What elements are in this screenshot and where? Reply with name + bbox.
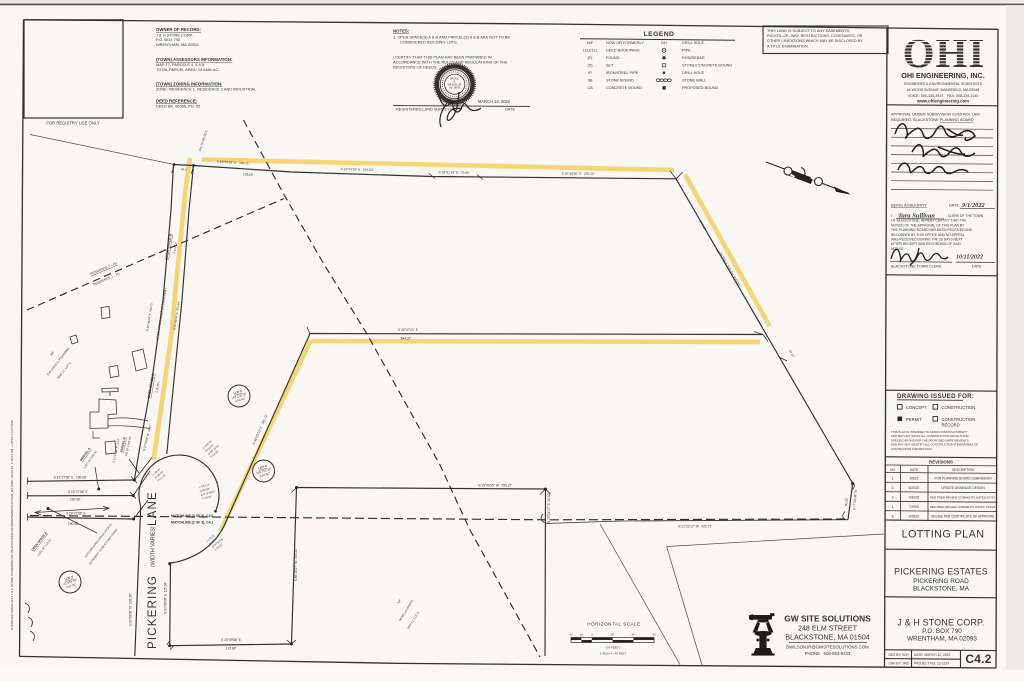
svg-text:THIS LAND IS SUBJECT TO ANY EA: THIS LAND IS SUBJECT TO ANY EASEMENTS, <box>767 29 850 33</box>
svg-text:ROD/REBAR: ROD/REBAR <box>682 56 705 60</box>
svg-text:GW SITE SOLUTIONS: GW SITE SOLUTIONS <box>784 614 871 624</box>
svg-text:S 88°25'27" W 333.10': S 88°25'27" W 333.10' <box>294 548 298 581</box>
svg-text:50.32': 50.32' <box>844 497 849 506</box>
svg-text:644.37': 644.37' <box>401 337 412 341</box>
svg-text:FOR PLANNING BOARD SUBMISSION: FOR PLANNING BOARD SUBMISSION <box>934 477 992 481</box>
svg-text:S 26°47'20" E: S 26°47'20" E <box>398 328 418 332</box>
svg-text:7/29/22: 7/29/22 <box>909 505 920 509</box>
svg-text:HORIZONTAL SCALE: HORIZONTAL SCALE <box>587 622 640 627</box>
svg-text:5/25/22: 5/25/22 <box>909 486 920 490</box>
svg-text:CONCRETE BOUND: CONCRETE BOUND <box>606 86 642 90</box>
svg-text:No. 36870: No. 36870 <box>449 87 461 90</box>
svg-text:1 INCH = 40 FEET: 1 INCH = 40 FEET <box>600 652 627 656</box>
svg-text:PIPE: PIPE <box>682 49 691 53</box>
svg-text:(F): (F) <box>588 56 594 60</box>
svg-text:(WIDTH VARIES): (WIDTH VARIES) <box>151 526 157 567</box>
svg-text:DRILL HOLE: DRILL HOLE <box>682 71 704 75</box>
svg-text:REGISTERED LAND SURVEYOR: REGISTERED LAND SURVEYOR <box>396 107 456 112</box>
svg-text:APPROVAL UNDER SUBDIVISION CON: APPROVAL UNDER SUBDIVISION CONTROL LAW <box>891 113 980 117</box>
svg-text:A TITLE EXAMINATION.: A TITLE EXAMINATION. <box>767 44 809 48</box>
svg-text:ZONE: RESIDENCE 1, RESIDENCE 2: ZONE: RESIDENCE 1, RESIDENCE 2 AND INDUS… <box>156 87 257 92</box>
svg-text:NOW OR FORMERLY: NOW OR FORMERLY <box>606 41 644 45</box>
svg-text:RIGHTS–OF–WAY, RESTRICTIONS, C: RIGHTS–OF–WAY, RESTRICTIONS, COVENANTS, … <box>767 34 863 38</box>
svg-text:248 ELM STREET: 248 ELM STREET <box>798 624 858 633</box>
svg-text:STONE/CONCRETE BOUND: STONE/CONCRETE BOUND <box>682 64 732 68</box>
svg-text:5.: 5. <box>892 515 895 519</box>
svg-text:UPDATE DRAINAGE DESIGN: UPDATE DRAINAGE DESIGN <box>941 486 985 490</box>
svg-text:VOICE: 508-339-3929 FAX: 50: VOICE: 508-339-3929 FAX: 508-339-3140 <box>908 94 979 98</box>
svg-text:J & H STONE CORP.: J & H STONE CORP. <box>897 618 984 628</box>
svg-text:DESCRIPTION: DESCRIPTION <box>952 468 974 472</box>
svg-text:BLACKSTONE TOWN CLERK: BLACKSTONE TOWN CLERK <box>891 264 942 268</box>
svg-text:NO.: NO. <box>890 468 896 472</box>
svg-text:173.88': 173.88' <box>226 647 237 651</box>
svg-text:DRAWING ISSUED FOR:: DRAWING ISSUED FOR: <box>897 393 974 400</box>
svg-text:10/11/2022: 10/11/2022 <box>956 255 983 261</box>
svg-text:1.: 1. <box>892 477 895 481</box>
svg-text:PHONE 508-553-9233: PHONE 508-553-9233 <box>805 651 851 656</box>
svg-text:CONTRACTOR JURISDICTION: CONTRACTOR JURISDICTION <box>891 447 932 451</box>
svg-text:PICKERING ESTATES: PICKERING ESTATES <box>894 567 988 577</box>
svg-text:1111/111: 1111/111 <box>583 49 597 53</box>
svg-text:S 20°59'56" E: S 20°59'56" E <box>221 638 241 642</box>
svg-text:RECORDED BY THIS OFFICE AND NO: RECORDED BY THIS OFFICE AND NO APPEAL <box>891 233 965 237</box>
svg-text:S 19°27'56" E: S 19°27'56" E <box>66 511 86 515</box>
svg-text:P.O. BOX 790: P.O. BOX 790 <box>922 628 962 635</box>
svg-text:AFTER RECEIPT AND RECORDING OF: AFTER RECEIPT AND RECORDING OF SAID <box>891 242 961 246</box>
svg-text:BLACKSTONE, MA 01504: BLACKSTONE, MA 01504 <box>785 633 870 642</box>
svg-text:STONE BOUND: STONE BOUND <box>606 79 634 83</box>
svg-text:2.: 2. <box>892 486 895 490</box>
svg-text:BEING A MAJORITY: BEING A MAJORITY <box>891 203 928 208</box>
svg-text:N 70°54'47" E 90.00': N 70°54'47" E 90.00' <box>547 493 551 524</box>
svg-text:DATE:: DATE: <box>949 203 960 208</box>
svg-text:TOTAL PARCEL AREA: 14.688± AC.: TOTAL PARCEL AREA: 14.688± AC. <box>156 67 219 72</box>
svg-text:190.08': 190.08' <box>68 522 79 526</box>
svg-text:LOTTING PLAN: LOTTING PLAN <box>902 529 985 541</box>
svg-text:www.ohiengineering.com: www.ohiengineering.com <box>916 99 969 104</box>
svg-text:190.08': 190.08' <box>70 498 81 502</box>
svg-text:( IN FEET ): ( IN FEET ) <box>605 646 620 650</box>
svg-text:BWILSONJR@GWSITESOLUTIONS.COM: BWILSONJR@GWSITESOLUTIONS.COM <box>786 644 869 649</box>
svg-text:DATE: DATE <box>972 264 982 268</box>
svg-text:WRENTHAM, MA 02093: WRENTHAM, MA 02093 <box>907 636 977 643</box>
svg-text:DRILL HOLE: DRILL HOLE <box>682 41 704 45</box>
svg-text:FOR REGISTRY USE ONLY: FOR REGISTRY USE ONLY <box>46 121 99 126</box>
svg-text:CONSTRUCTION: CONSTRUCTION <box>942 405 976 410</box>
svg-text:PICKERING: PICKERING <box>147 575 159 649</box>
svg-text:80: 80 <box>653 633 656 637</box>
svg-text:DEED BOOK/PAGE: DEED BOOK/PAGE <box>606 49 640 53</box>
svg-text:DATE: MARCH 12, 2022: DATE: MARCH 12, 2022 <box>914 653 950 657</box>
svg-text:REVISIONS: REVISIONS <box>929 460 953 465</box>
svg-text:FOUND: FOUND <box>606 56 620 60</box>
svg-text:WAS RECEIVED DURING THE 20 DAY: WAS RECEIVED DURING THE 20 DAYS NEXT <box>891 238 962 242</box>
svg-text:THE PLANNING BOARD HAS BEEN RE: THE PLANNING BOARD HAS BEEN RECEIVED AND <box>891 228 973 232</box>
svg-text:CONCEPT: CONCEPT <box>906 405 927 410</box>
svg-text:LANE: LANE <box>147 491 159 526</box>
svg-text:PER PEER REVIEW COMMENTS DATED: PER PEER REVIEW COMMENTS DATED 7/13/22 <box>930 505 996 509</box>
svg-text:DEED BK. 66355, PG. 55: DEED BK. 66355, PG. 55 <box>156 104 200 109</box>
svg-text:SB: SB <box>587 79 593 83</box>
svg-text:9/28/22: 9/28/22 <box>909 515 920 519</box>
svg-text:9/1/2022: 9/1/2022 <box>962 202 986 209</box>
svg-text:REVISE PER CERTIFICATE OF APPR: REVISE PER CERTIFICATE OF APPROVAL <box>931 515 995 519</box>
svg-text:O:\PROJECTED\22-2197 J & H STO: O:\PROJECTED\22-2197 J & H STONE PICKERI… <box>10 419 14 630</box>
svg-text:ENGINEERS & ENVIRONMENTAL SCIE: ENGINEERS & ENVIRONMENTAL SCIENTISTS <box>904 82 983 86</box>
svg-text:OWNER OF RECORD:: OWNER OF RECORD: <box>156 27 201 32</box>
svg-text:CONSTRUCTION: CONSTRUCTION <box>942 417 976 422</box>
svg-text:20: 20 <box>580 633 583 637</box>
svg-text:MATCHLINE (2 OF 3), C4.0: MATCHLINE (2 OF 3), C4.0 <box>171 514 213 518</box>
svg-text:REGISTERS OF DEEDS.: REGISTERS OF DEEDS. <box>393 64 438 69</box>
svg-text:40: 40 <box>632 633 635 637</box>
svg-text:4.: 4. <box>892 505 895 509</box>
svg-text:RECORD: RECORD <box>942 423 960 428</box>
svg-text:S 18°51'14" E 75.66': S 18°51'14" E 75.66' <box>439 170 470 175</box>
svg-text:NOTICE OF THE APPROVAL OF THIS: NOTICE OF THE APPROVAL OF THIS PLAN BY <box>891 223 965 227</box>
svg-text:3.: 3. <box>892 496 895 500</box>
svg-text:PROPOSED BOUND: PROPOSED BOUND <box>682 86 719 90</box>
svg-text:, CLERK OF THE TOWN: , CLERK OF THE TOWN <box>946 214 984 218</box>
svg-text:40: 40 <box>570 633 573 637</box>
svg-text:I: I <box>891 214 892 218</box>
svg-text:OTHER LIMITATIONS WHICH MAY BE: OTHER LIMITATIONS WHICH MAY BE DISCLOSED… <box>767 39 863 43</box>
svg-text:CHK BY: JRB: CHK BY: JRB <box>889 662 910 666</box>
svg-text:OHI: OHI <box>903 30 986 76</box>
svg-text:N 69°06'08" E 115.04': N 69°06'08" E 115.04' <box>164 582 168 614</box>
svg-text:PICKERING ROAD: PICKERING ROAD <box>913 578 969 585</box>
svg-text:PER PEER REVIEW COMMENTS DATED: PER PEER REVIEW COMMENTS DATED 6/7/22 <box>930 496 995 500</box>
svg-text:CONSIDERED BUILDING LOTS.: CONSIDERED BUILDING LOTS. <box>400 40 458 45</box>
svg-text:IRON/STEEL PIPE: IRON/STEEL PIPE <box>606 71 639 75</box>
svg-text:44 WOOD AVENUE, MANSFIELD, MA: 44 WOOD AVENUE, MANSFIELD, MA 02048 <box>907 88 980 92</box>
svg-text:C4.2: C4.2 <box>965 652 991 666</box>
svg-text:SET: SET <box>606 64 614 68</box>
svg-text:N 19°46'55" W 355.27': N 19°46'55" W 355.27' <box>478 484 512 488</box>
svg-text:MARCH 12, 2022: MARCH 12, 2022 <box>478 99 511 104</box>
svg-text:REQUIRED: BLACKSTONE PLANNING: REQUIRED: BLACKSTONE PLANNING BOARD <box>891 118 974 122</box>
svg-text:WRENTHAM, MA 02093: WRENTHAM, MA 02093 <box>156 42 199 47</box>
svg-text:DES BY: SLR: DES BY: SLR <box>889 653 910 657</box>
svg-text:PERMIT: PERMIT <box>906 417 922 422</box>
svg-text:139.69': 139.69' <box>243 172 254 177</box>
svg-text:OHI ENGINEERING, INC.: OHI ENGINEERING, INC. <box>901 71 984 80</box>
svg-text:LEGEND: LEGEND <box>644 31 675 38</box>
svg-text:STONE WALL: STONE WALL <box>682 79 706 83</box>
svg-text:CB: CB <box>587 86 593 90</box>
svg-text:20: 20 <box>611 633 614 637</box>
svg-text:6/30/22: 6/30/22 <box>909 496 920 500</box>
svg-text:5/5/22: 5/5/22 <box>910 477 919 481</box>
svg-text:DATE: DATE <box>910 468 918 472</box>
svg-text:IP: IP <box>588 71 592 75</box>
svg-text:N 21°32'17" W 425.71': N 21°32'17" W 425.71' <box>678 525 712 529</box>
svg-text:S 19°27'56" E 190.08': S 19°27'56" E 190.08' <box>54 476 87 480</box>
svg-text:MATCHLINE (2 OF 3), C4.1: MATCHLINE (2 OF 3), C4.1 <box>171 520 213 524</box>
svg-text:S 09°08'06" W 105.36': S 09°08'06" W 105.36' <box>129 593 133 626</box>
svg-text:NOTES:: NOTES: <box>393 29 410 34</box>
svg-text:S 19°27'56" E: S 19°27'56" E <box>68 490 88 494</box>
svg-text:DATE: DATE <box>505 107 515 112</box>
svg-text:(S): (S) <box>587 64 593 68</box>
svg-text:N/F: N/F <box>587 41 594 45</box>
svg-text:BLACKSTONE, MA: BLACKSTONE, MA <box>913 586 970 593</box>
svg-text:PROJECT NO. 22-2197: PROJECT NO. 22-2197 <box>914 662 949 666</box>
svg-text:36.0': 36.0' <box>181 167 188 171</box>
svg-text:S 20°45'50" E 275.12': S 20°45'50" E 275.12' <box>562 172 595 176</box>
svg-text:DH: DH <box>661 41 667 45</box>
